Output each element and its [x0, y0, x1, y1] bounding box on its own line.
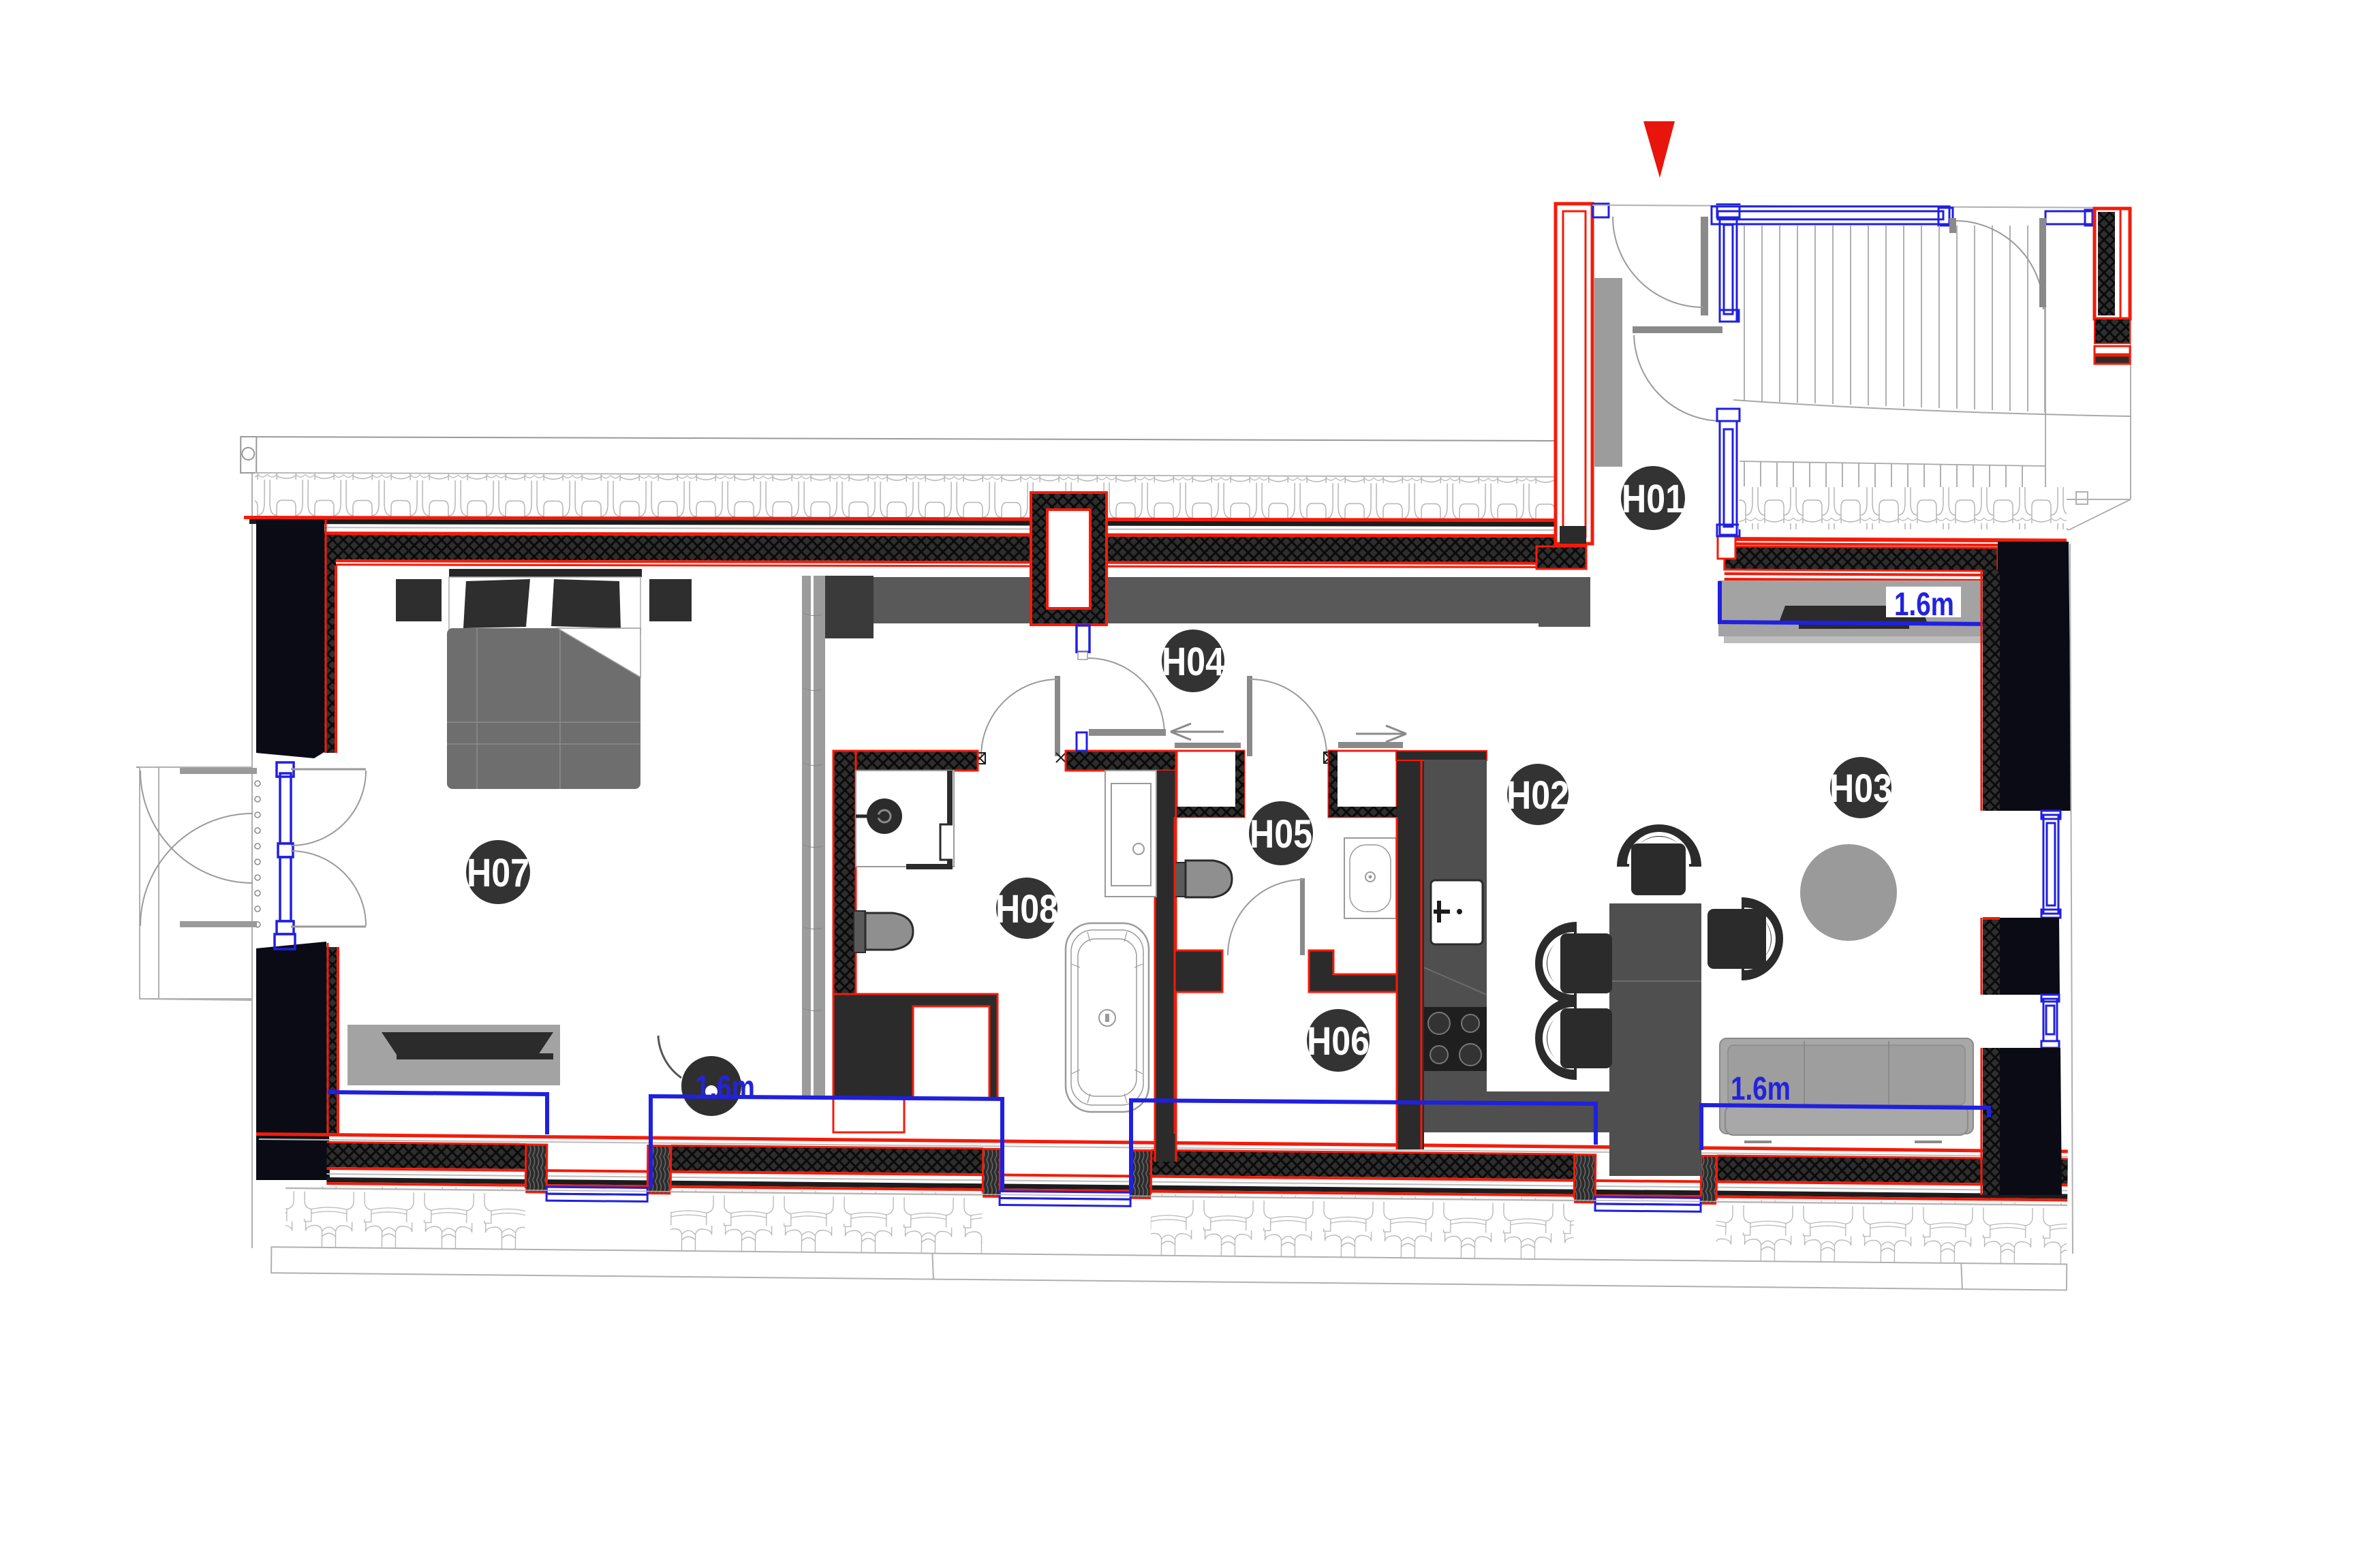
- svg-text:1.6m: 1.6m: [1731, 1071, 1791, 1107]
- svg-text:H05: H05: [1250, 812, 1312, 856]
- svg-text:H04: H04: [1162, 640, 1224, 684]
- svg-text:H01: H01: [1622, 477, 1684, 521]
- svg-text:1.6m: 1.6m: [1894, 587, 1954, 623]
- svg-text:1.6m: 1.6m: [695, 1070, 755, 1106]
- svg-text:H07: H07: [467, 851, 529, 895]
- svg-text:H06: H06: [1307, 1019, 1370, 1064]
- svg-text:H08: H08: [995, 887, 1058, 931]
- svg-text:H03: H03: [1829, 766, 1892, 811]
- svg-text:H02: H02: [1506, 773, 1569, 818]
